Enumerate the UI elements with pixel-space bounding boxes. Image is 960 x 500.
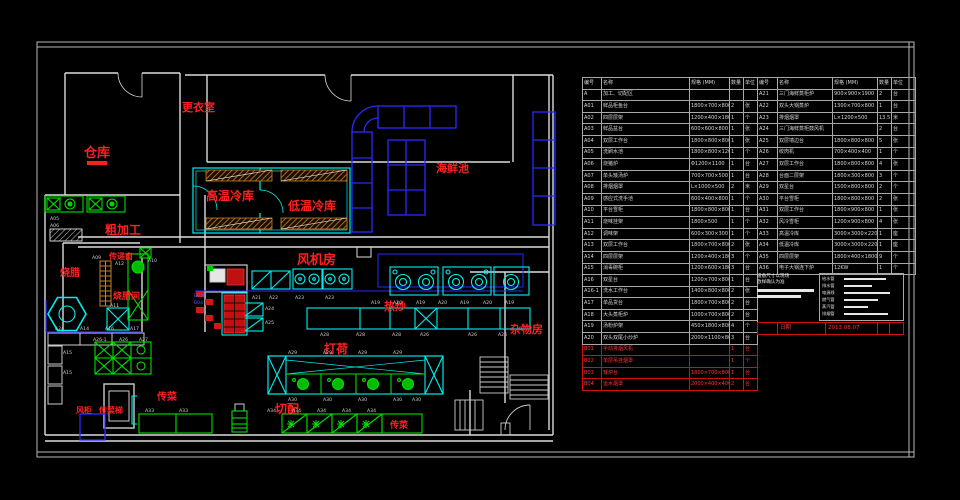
room-label: 杂物房 (510, 322, 543, 336)
table-row: A25双层墙边台1800×800×8005张 (758, 135, 916, 147)
table-cell (744, 89, 758, 101)
table-cell: A11 (583, 217, 602, 229)
table-cell: A16-1 (583, 286, 602, 298)
table-cell: 1 (730, 124, 744, 136)
table-cell: 2 (730, 298, 744, 310)
table-cell: A19 (583, 321, 602, 333)
room-label: 传菜梯 (98, 405, 123, 415)
table-row: A30平台雪柜1800×800×8002张 (758, 193, 916, 205)
table-cell: 调味架 (602, 228, 690, 240)
table-cell: A05 (583, 147, 602, 159)
table-cell: 600×600×800 (690, 124, 730, 136)
room-label: 烧腊间 (113, 290, 140, 302)
table-cell: 1500×800×800 (833, 182, 878, 194)
equipment-tag: A27 (139, 337, 148, 343)
room-label: 仓库 (83, 145, 110, 161)
equipment-tag: A33 (145, 408, 154, 414)
table-cell: 1200×400×1800 (690, 112, 730, 124)
equipment-tag: A22 (269, 295, 278, 301)
table-cell: 感应式洗手池 (602, 193, 690, 205)
table-cell: 座 (892, 228, 916, 240)
table-cell: 2 (878, 124, 892, 136)
table-row: A03鲜品盆台600×600×8001张 (583, 124, 758, 136)
column-header: 编号 (583, 78, 602, 90)
table-cell: 台 (892, 89, 916, 101)
legend-line (844, 292, 890, 294)
legend-row: 给水管 (822, 275, 901, 282)
table-cell: 双层工作台 (778, 205, 833, 217)
table-cell: 烧味挂架 (602, 217, 690, 229)
table-row: A17单品货台1800×700×8002台 (583, 298, 758, 310)
table-cell: 四层层架 (602, 112, 690, 124)
table-cell: 1800×700×800 (690, 101, 730, 113)
table-cell: 9 (878, 251, 892, 263)
equipment-tag: A11 (110, 303, 119, 309)
legend-label: 给水管 (822, 276, 844, 282)
legend-row: 排水管 (822, 282, 901, 289)
table-cell: A31 (758, 205, 778, 217)
equipment-tag: A19 (416, 300, 425, 306)
table-cell: 台 (744, 205, 758, 217)
column-header: 名称 (778, 78, 833, 90)
table-cell: 1800×700×800 (690, 240, 730, 252)
table-cell: 个 (892, 170, 916, 182)
room-label: 传菜 (389, 419, 409, 431)
column-header: 数量 (878, 78, 892, 90)
table-cell: 台 (744, 367, 758, 379)
table-cell: 座 (892, 240, 916, 252)
table-cell: 1 (730, 344, 744, 356)
table-cell: 双头双尾小炒炉 (602, 333, 690, 345)
table-cell: 2 (730, 309, 744, 321)
table-cell (730, 89, 744, 101)
table-cell (690, 356, 730, 368)
table-row: A22双头大锅蒸炉1300×700×8001台 (758, 101, 916, 113)
table-cell: A21 (758, 89, 778, 101)
equipment-tag: A12 (115, 261, 124, 267)
table-row: A23排烟烟罩L×1200×50013.5米 (758, 112, 916, 124)
equipment-tag: A23 (325, 295, 334, 301)
table-cell: 1800×500 (690, 217, 730, 229)
equipment-tag: A21 (252, 295, 261, 301)
table-cell: 4 (878, 159, 892, 171)
table-cell: 1 (730, 205, 744, 217)
table-cell: 1800×800×800 (690, 205, 730, 217)
legend-line (844, 299, 878, 301)
table-cell: 单层吊挂烟罩 (602, 356, 690, 368)
table-cell: 个 (744, 228, 758, 240)
table-cell: A15 (583, 263, 602, 275)
room-label: 低温冷库 (287, 198, 336, 213)
table-row: A20双头双尾小炒炉2000×1100×8003台 (583, 333, 758, 345)
table-cell: 1 (730, 170, 744, 182)
table-row: A16-1洗水工作台1400×800×8002张 (583, 286, 758, 298)
equipment-tag: A28 (356, 332, 365, 338)
equipment-tag: A30 (323, 397, 332, 403)
table-cell: A04 (583, 135, 602, 147)
equipment-tag: A34 (292, 408, 301, 414)
table-cell: B03 (583, 367, 602, 379)
table-cell: 1 (730, 135, 744, 147)
equipment-tag: A09 (92, 255, 101, 261)
table-cell: A01 (583, 101, 602, 113)
column-header: 单位 (892, 78, 916, 90)
table-cell: B02 (583, 356, 602, 368)
title-bar-cell: 2013.08.07 (826, 323, 878, 334)
table-row: A09感应式洗手池600×400×8001个 (583, 193, 758, 205)
table-cell: 2000×400×400 (690, 379, 730, 391)
table-cell: A28 (758, 170, 778, 182)
table-cell: A07 (583, 170, 602, 182)
table-cell: 1 (730, 367, 744, 379)
table-cell: 1400×800×800 (690, 286, 730, 298)
table-cell: 1 (878, 147, 892, 159)
table-cell: 1 (730, 147, 744, 159)
equipment-tag: A30 (288, 397, 297, 403)
table-cell: 1800×400×1800 (833, 251, 878, 263)
note-bar (757, 289, 814, 292)
table-cell: A16 (583, 275, 602, 287)
table-cell: A33 (758, 228, 778, 240)
equipment-tag: A29 (393, 350, 402, 356)
table-cell: 1000×700×800 (690, 309, 730, 321)
room-label: 风机房 (297, 252, 336, 268)
equipment-tag: A30 (358, 397, 367, 403)
room-label: 高温冷库 (206, 188, 254, 203)
equipment-tag: A29 (358, 350, 367, 356)
table-cell: 高温冷库 (778, 228, 833, 240)
table-cell: A (583, 89, 602, 101)
table-cell: 3 (730, 263, 744, 275)
room-label: 传递窗 (108, 251, 133, 261)
table-row: A05洗刷水池1800×800×12001个 (583, 147, 758, 159)
table-cell: 双层墙边台 (778, 135, 833, 147)
table-cell: 台 (744, 333, 758, 345)
table-cell: 米 (892, 112, 916, 124)
table-cell: A02 (583, 112, 602, 124)
equipment-tag: A19 (371, 300, 380, 306)
equipment-tag: A16 (105, 326, 114, 332)
table-cell: 1800×300×800 (833, 170, 878, 182)
table-cell: 汤粉炉架 (602, 321, 690, 333)
table-cell: 2 (730, 240, 744, 252)
table-cell: 1800×700×800 (690, 298, 730, 310)
equipment-tag: A23 (295, 295, 304, 301)
column-header: 名称 (602, 78, 690, 90)
table-row: A27双层工作台1800×800×8004张 (758, 159, 916, 171)
equipment-tag: A15 (63, 350, 72, 356)
table-cell: 3000×3000×2200 (833, 240, 878, 252)
table-cell: 台 (892, 124, 916, 136)
legend-line (844, 278, 886, 280)
table-cell: 1 (730, 112, 744, 124)
equipment-schedule-left: 编号名称规格 (MM)数量单位A加工、切配区A01鲜品柜鱼台1800×700×8… (582, 77, 746, 391)
table-cell: 个 (744, 251, 758, 263)
table-cell: 四层层架 (602, 251, 690, 263)
equipment-tag: A15 (63, 370, 72, 376)
table-cell: 张 (744, 135, 758, 147)
table-cell: A32 (758, 217, 778, 229)
table-cell: 1 (730, 228, 744, 240)
table-cell: 450×1800×800 (690, 321, 730, 333)
table-cell: 3 (878, 170, 892, 182)
table-cell: 1 (878, 205, 892, 217)
room-label: 更衣室 (182, 100, 215, 114)
equipment-tag: A28 (320, 332, 329, 338)
title-bar-cell (890, 323, 903, 334)
room-label: 海鲜池 (436, 161, 469, 175)
table-cell: 1200×400×1800 (690, 251, 730, 263)
table-cell: 台 (744, 344, 758, 356)
legend-label: 排烟管 (822, 311, 844, 317)
table-cell: 运水烟罩 (602, 379, 690, 391)
legend-label: 蒸汽管 (822, 304, 844, 310)
table-row: A01鲜品柜鱼台1800×700×8002张 (583, 101, 758, 113)
table-cell: 台 (744, 379, 758, 391)
table-cell: 5 (878, 135, 892, 147)
table-cell: 1800×800×800 (833, 193, 878, 205)
table-cell: 排烟烟罩 (778, 112, 833, 124)
column-header: 规格 (MM) (690, 78, 730, 90)
fan-cabinet (80, 414, 105, 440)
table-cell: 1800×800×1200 (690, 147, 730, 159)
equipment-tag: A29 (288, 350, 297, 356)
table-cell: A13 (583, 240, 602, 252)
legend-row: 蒸汽管 (822, 303, 901, 310)
table-cell: 1 (730, 275, 744, 287)
table-cell: 手动排烟风机 (602, 344, 690, 356)
table-cell: 双层工作台 (602, 240, 690, 252)
table-cell: 台 (744, 309, 758, 321)
table-cell: A06 (583, 159, 602, 171)
legend-label: 排水管 (822, 283, 844, 289)
legend-line (844, 285, 872, 287)
equipment-schedule-right: 编号名称规格 (MM)数量单位A21三门海鲜蒸柜炉900×900×19002台A… (757, 77, 904, 275)
note-line: 放样确认为准 (757, 280, 819, 286)
table-cell (690, 344, 730, 356)
table-cell: 700×400×400 (833, 147, 878, 159)
equipment-tag: A34 (267, 408, 276, 414)
equipment-tag: A26 (119, 337, 128, 343)
table-cell: 4 (878, 217, 892, 229)
table-cell: A18 (583, 309, 602, 321)
table-row: A21三门海鲜蒸柜炉900×900×19002台 (758, 89, 916, 101)
shelf-rack (100, 261, 111, 306)
table-cell: A23 (758, 112, 778, 124)
table-cell: 大头蒸柜炉 (602, 309, 690, 321)
table-cell: L×1200×500 (833, 112, 878, 124)
table-cell: 个 (744, 147, 758, 159)
table-cell: 平台雪柜 (602, 205, 690, 217)
table-cell: A24 (758, 124, 778, 136)
legend-symbols: 给水管排水管电源线燃气管蒸汽管排烟管 (819, 273, 904, 321)
table-cell: 双星台 (778, 182, 833, 194)
seafood-tanks (46, 106, 555, 440)
table-cell: A29 (758, 182, 778, 194)
table-cell: 鲜品盆台 (602, 124, 690, 136)
table-cell: 1800×800×800 (833, 135, 878, 147)
table-cell: 张 (744, 101, 758, 113)
table-row: A06烧猪炉Φ1200×11001台 (583, 159, 758, 171)
legend-row: 燃气管 (822, 296, 901, 303)
table-cell: 13.5 (878, 112, 892, 124)
table-cell: 个 (744, 356, 758, 368)
table-cell: 张 (892, 135, 916, 147)
equipment-tag: A29 (323, 350, 332, 356)
table-cell: 1200×600×1800 (690, 263, 730, 275)
table-cell: 2 (730, 379, 744, 391)
cad-canvas[interactable]: 仓库更衣室高温冷库低温冷库海鲜池风机房粗加工传递窗烧腊烧腊间热炒打荷切配传菜风柜… (0, 0, 960, 500)
table-cell: 1800×800×800 (833, 159, 878, 171)
notes: 设备尺寸以现场 放样确认为准 (757, 273, 819, 321)
table-cell: 张 (892, 193, 916, 205)
room-label: 传菜 (156, 390, 178, 403)
note-bar (757, 295, 801, 298)
column-header: 数量 (730, 78, 744, 90)
table-cell: A34 (758, 240, 778, 252)
table-cell: 洗水工作台 (602, 286, 690, 298)
table-cell: 2 (878, 89, 892, 101)
table-cell: 平台雪柜 (778, 193, 833, 205)
table-cell: 双层工作台 (602, 135, 690, 147)
header-row: 编号名称规格 (MM)数量单位 (758, 78, 916, 90)
table-cell: 张 (892, 217, 916, 229)
table-cell: 1800×900×800 (833, 205, 878, 217)
table-cell: 2 (878, 182, 892, 194)
table-cell: 鲜品柜鱼台 (602, 101, 690, 113)
table-cell: 1 (878, 101, 892, 113)
equipment-tag: A05 (50, 216, 59, 222)
equipment-tag: A30 (412, 397, 421, 403)
table-cell: 1200×700×800 (690, 275, 730, 287)
table-cell: 矮炉台 (602, 367, 690, 379)
table-cell: A08 (583, 182, 602, 194)
table-row: B01手动排烟风机1台 (583, 344, 758, 356)
equipment-tag: A20 (483, 300, 492, 306)
table-cell: 1 (878, 228, 892, 240)
table-cell: L×1000×500 (690, 182, 730, 194)
equipment-tag: A19 (460, 300, 469, 306)
table-cell: A20 (583, 333, 602, 345)
table-row: A19汤粉炉架450×1800×8004个 (583, 321, 758, 333)
table-cell: A27 (758, 159, 778, 171)
table-cell: 烧猪炉 (602, 159, 690, 171)
table-cell: A03 (583, 124, 602, 136)
table-cell: 1 (730, 193, 744, 205)
title-bar: 日期2013.08.07 (757, 322, 904, 335)
table-row: A31双层工作台1800×900×8001张 (758, 205, 916, 217)
equipment-tag: A34 (367, 408, 376, 414)
legend-label: 燃气管 (822, 297, 844, 303)
table-cell: 单头矮汤炉 (602, 170, 690, 182)
equipment-tag: A34 (342, 408, 351, 414)
table-row: A07单头矮汤炉700×700×5001台 (583, 170, 758, 182)
table-cell: 个 (744, 193, 758, 205)
table-cell: 张 (892, 159, 916, 171)
equipment-tag: A20 (393, 300, 402, 306)
table-cell: 1300×700×800 (833, 101, 878, 113)
table-cell: A35 (758, 251, 778, 263)
table-cell: 1 (730, 217, 744, 229)
table-cell: 1800×700×800 (690, 367, 730, 379)
table-cell: 1 (878, 240, 892, 252)
table-cell: 2 (730, 182, 744, 194)
table-cell: A12 (583, 228, 602, 240)
legend-row: 排烟管 (822, 310, 901, 317)
table-cell (690, 89, 730, 101)
table-cell: A14 (583, 251, 602, 263)
table-cell: 低温冷库 (778, 240, 833, 252)
table-cell: 排烟烟罩 (602, 182, 690, 194)
table-cell: 台 (744, 159, 758, 171)
equipment-tag: A25 (265, 320, 274, 326)
table-cell: A17 (583, 298, 602, 310)
table-cell: 四层层架 (778, 251, 833, 263)
table-row: A04双层工作台1800×800×8001张 (583, 135, 758, 147)
table-row: A12调味架600×300×3001个 (583, 228, 758, 240)
table-cell: 1 (730, 159, 744, 171)
legend-block: 设备尺寸以现场 放样确认为准 给水管排水管电源线燃气管蒸汽管排烟管 (757, 273, 904, 321)
equipment-tag: A24 (265, 306, 274, 312)
table-row: A29双星台1500×800×8002个 (758, 182, 916, 194)
table-cell: 风冷雪柜 (778, 217, 833, 229)
table-cell: 绞肉机 (778, 147, 833, 159)
table-cell: 个 (892, 182, 916, 194)
table-cell: 台 (892, 101, 916, 113)
legend-row: 电源线 (822, 289, 901, 296)
round-table (48, 298, 86, 331)
table-cell: 2 (878, 193, 892, 205)
table-cell: B01 (583, 344, 602, 356)
table-cell: A09 (583, 193, 602, 205)
room-label: 烧腊 (60, 266, 80, 279)
table-cell: 700×700×500 (690, 170, 730, 182)
table-cell: 1200×900×800 (833, 217, 878, 229)
table-cell: 3 (730, 333, 744, 345)
table-row: A11烧味挂架1800×5001个 (583, 217, 758, 229)
title-bar-cell: 日期 (778, 323, 826, 334)
equipment-tag: A10 (148, 258, 157, 264)
table-row: B04运水烟罩2000×400×4002台 (583, 379, 758, 391)
table-cell: 消毒碗柜 (602, 263, 690, 275)
table-cell: 个 (744, 321, 758, 333)
table-cell: A22 (758, 101, 778, 113)
table-row: A15消毒碗柜1200×600×18003台 (583, 263, 758, 275)
table-row: A加工、切配区 (583, 89, 758, 101)
equipment-tag: A20 (438, 300, 447, 306)
legend-line (844, 313, 888, 315)
table-row: B03矮炉台1800×700×8001台 (583, 367, 758, 379)
table-cell: 900×900×1900 (833, 89, 878, 101)
title-bar-cell (758, 323, 778, 334)
equipment-tag: A19 (505, 300, 514, 306)
table-cell: 张 (744, 240, 758, 252)
equipment-tag: A28 (392, 332, 401, 338)
table-cell: 三门海鲜蒸柜炉 (778, 89, 833, 101)
table-cell: 个 (892, 251, 916, 263)
equipment-tag: A30 (393, 397, 402, 403)
table-row: A08排烟烟罩L×1000×5002米 (583, 182, 758, 194)
table-cell: 2000×1100×800 (690, 333, 730, 345)
table-cell: 双层工作台 (778, 159, 833, 171)
table-cell: 单品货台 (602, 298, 690, 310)
table-cell: 3 (730, 251, 744, 263)
table-row: A35四层层架1800×400×18009个 (758, 251, 916, 263)
table-row: A28台面二层架1800×300×8003个 (758, 170, 916, 182)
header-row: 编号名称规格 (MM)数量单位 (583, 78, 758, 90)
table-cell: 加工、切配区 (602, 89, 690, 101)
room-label: 粗加工 (105, 222, 141, 237)
